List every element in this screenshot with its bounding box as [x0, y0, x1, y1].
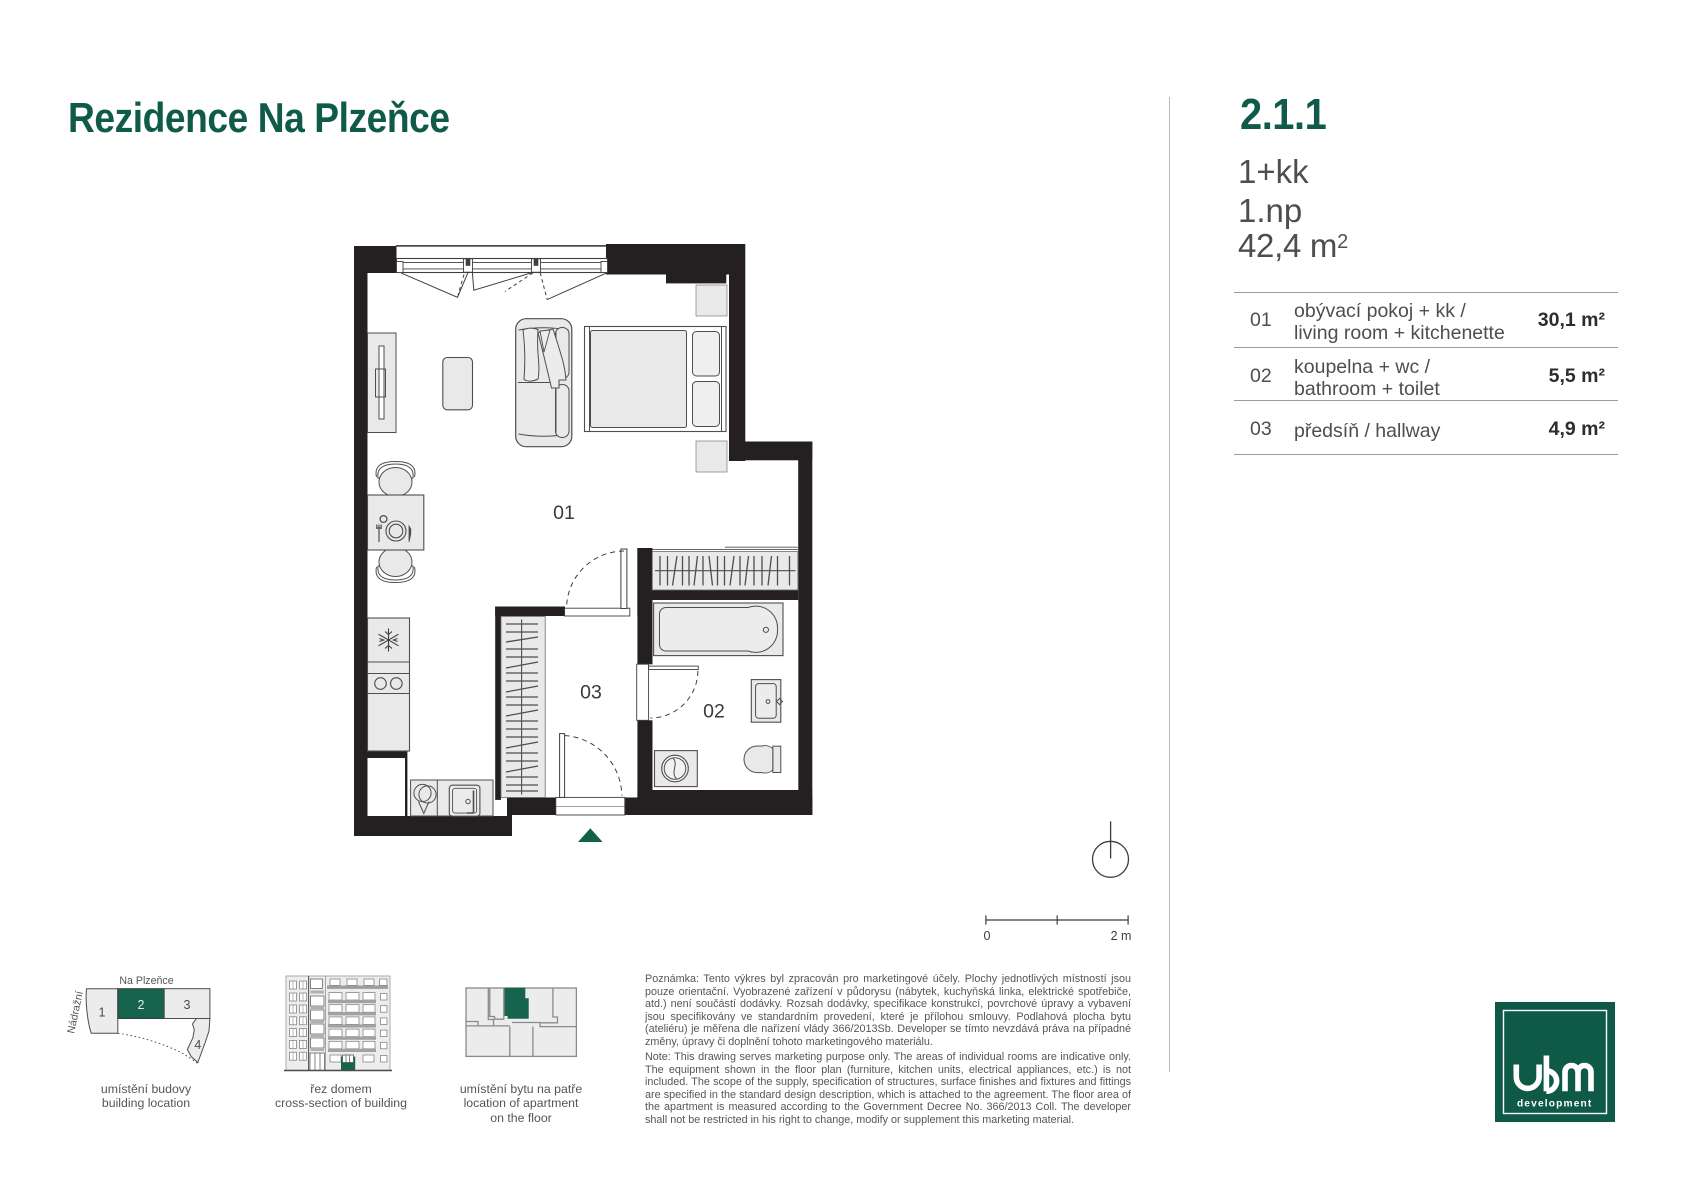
- svg-text:01: 01: [553, 502, 575, 524]
- svg-text:02: 02: [703, 701, 725, 723]
- svg-text:Na Plzeňce: Na Plzeňce: [119, 975, 173, 987]
- svg-text:2: 2: [138, 998, 145, 1012]
- svg-text:0: 0: [984, 929, 991, 943]
- svg-text:1: 1: [99, 1006, 106, 1020]
- svg-text:development: development: [1517, 1099, 1593, 1110]
- svg-text:Nádražní: Nádražní: [65, 990, 86, 1035]
- svg-text:4: 4: [194, 1038, 201, 1052]
- svg-text:03: 03: [580, 682, 602, 704]
- svg-text:3: 3: [184, 998, 191, 1012]
- svg-text:2 m: 2 m: [1111, 929, 1132, 943]
